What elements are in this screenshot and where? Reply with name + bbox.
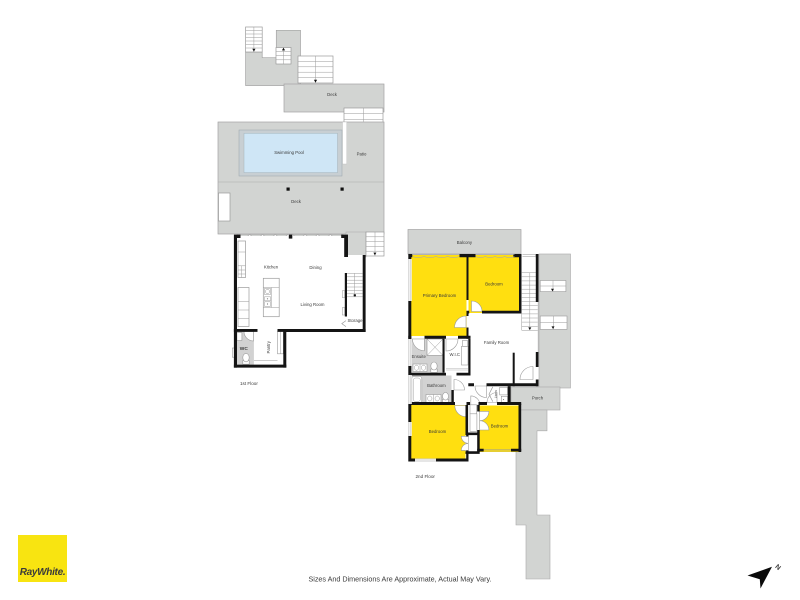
svg-text:Deck: Deck <box>291 199 302 204</box>
svg-text:Storage: Storage <box>347 318 363 323</box>
svg-text:RayWhite.: RayWhite. <box>20 567 66 578</box>
svg-text:2nd Floor: 2nd Floor <box>416 474 436 479</box>
svg-text:Ensuite: Ensuite <box>412 354 427 359</box>
svg-text:W.I.C: W.I.C <box>450 352 461 357</box>
svg-text:Dining: Dining <box>309 265 322 270</box>
svg-text:N: N <box>774 563 782 572</box>
svg-text:Swimming Pool: Swimming Pool <box>274 150 304 155</box>
svg-text:1st Floor: 1st Floor <box>240 381 258 386</box>
svg-text:Bedroom: Bedroom <box>485 282 503 287</box>
svg-text:Porch: Porch <box>532 396 544 401</box>
svg-text:Living Room: Living Room <box>301 302 325 307</box>
svg-text:Family Room: Family Room <box>484 340 510 345</box>
svg-text:Sizes And Dimensions Are Appro: Sizes And Dimensions Are Approximate, Ac… <box>308 575 491 584</box>
svg-text:Kitchen: Kitchen <box>264 265 279 270</box>
svg-text:Bathroom: Bathroom <box>427 383 446 388</box>
svg-text:WC: WC <box>240 346 249 352</box>
svg-text:Deck: Deck <box>327 92 338 97</box>
svg-text:Patio: Patio <box>357 152 367 157</box>
svg-text:Balcony: Balcony <box>457 240 473 245</box>
svg-text:Linen: Linen <box>494 390 498 398</box>
svg-text:Pantry: Pantry <box>266 340 271 353</box>
svg-text:Primary Bedroom: Primary Bedroom <box>423 293 457 298</box>
svg-text:Bedroom: Bedroom <box>429 429 447 434</box>
svg-text:Bedroom: Bedroom <box>491 424 509 429</box>
